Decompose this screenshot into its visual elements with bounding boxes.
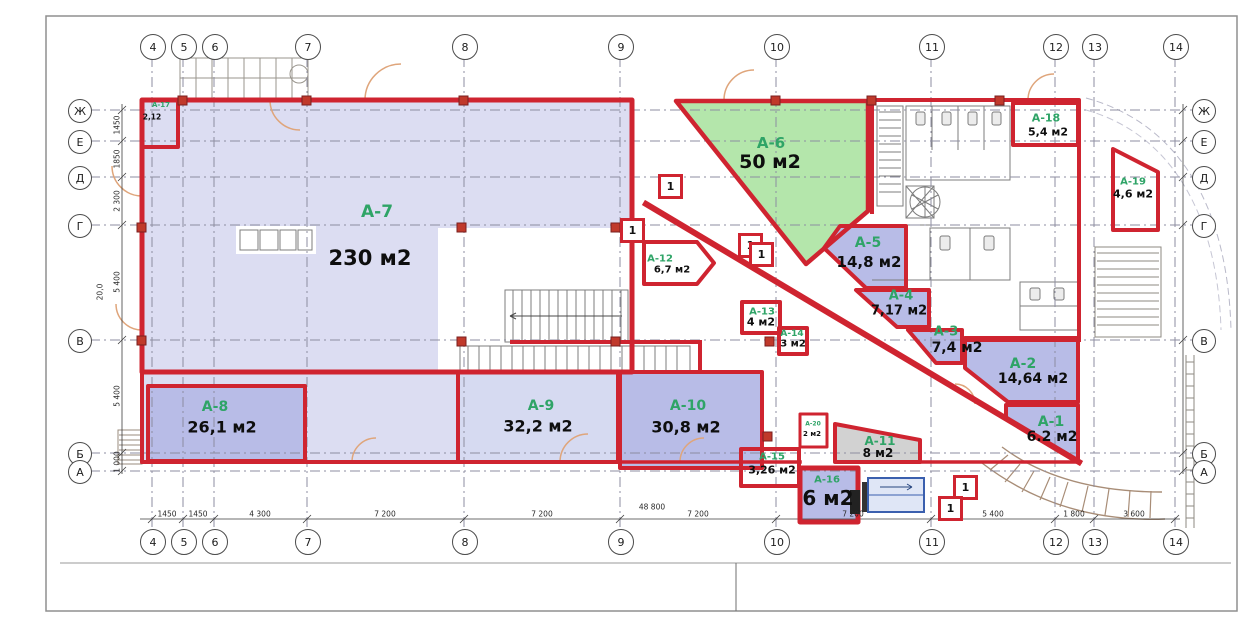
dim-bottom-0: 1450	[157, 510, 176, 519]
dim-left-2: 2 300	[113, 190, 122, 211]
room-code-a4: A-4	[889, 289, 914, 304]
dim-left-0: 1450	[113, 115, 122, 134]
axis-bottom-10: 10	[764, 529, 790, 555]
dim-bottom-7: 5 400	[982, 510, 1003, 519]
room-area-a18: 5,4 м2	[1028, 126, 1068, 139]
axis-top-8: 8	[452, 34, 478, 60]
room-area-a13: 4 м2	[747, 316, 775, 329]
room-area-a1: 6.2 м2	[1027, 429, 1078, 445]
axis-bottom-12: 12	[1043, 529, 1069, 555]
door-marker-1-f: 1	[938, 496, 963, 521]
axis-left-e: Е	[68, 130, 92, 154]
dim-left-3: 5 400	[113, 271, 122, 292]
axis-left-g: Г	[68, 214, 92, 238]
axis-top-10: 10	[764, 34, 790, 60]
axis-bottom-11: 11	[919, 529, 945, 555]
room-code-a17: A-17	[152, 101, 170, 109]
room-code-a9: A-9	[528, 398, 554, 414]
room-code-a10: A-10	[670, 398, 706, 414]
room-area-a12: 6,7 м2	[654, 265, 690, 276]
axis-bottom-4: 4	[140, 529, 166, 555]
axis-bottom-9: 9	[608, 529, 634, 555]
room-code-a8: A-8	[202, 399, 228, 415]
dim-bottom-1: 1450	[188, 510, 207, 519]
room-area-a16: 6 м2	[802, 486, 853, 510]
room-code-a1: A-1	[1038, 414, 1064, 430]
axis-right-zh: Ж	[1192, 99, 1216, 123]
door-marker-1-a: 1	[658, 174, 683, 199]
axis-top-11: 11	[919, 34, 945, 60]
dim-left-5: 1 000	[113, 451, 122, 472]
room-area-a19: 4,6 м2	[1113, 188, 1153, 201]
axis-bottom-13: 13	[1082, 529, 1108, 555]
axis-top-14: 14	[1163, 34, 1189, 60]
room-area-a15: 3,26 м2	[748, 464, 796, 477]
axis-top-6: 6	[202, 34, 228, 60]
dim-bottom-8: 1 800	[1063, 510, 1084, 519]
axis-bottom-6: 6	[202, 529, 228, 555]
room-area-a6: 50 м2	[739, 151, 801, 173]
axis-right-g: Г	[1192, 214, 1216, 238]
axis-left-d: Д	[68, 166, 92, 190]
room-area-a20: 2 м2	[803, 430, 821, 438]
axis-top-5: 5	[171, 34, 197, 60]
dim-left-total: 20,0	[96, 284, 105, 301]
room-area-a17: 2,12	[143, 113, 162, 122]
room-area-a4: 7,17 м2	[871, 304, 927, 319]
room-area-a2: 14,64 м2	[998, 371, 1068, 387]
room-code-a7: A-7	[361, 202, 393, 222]
axis-left-v: В	[68, 329, 92, 353]
room-code-a16: A-16	[814, 475, 840, 486]
room-code-a15: A-15	[759, 452, 785, 463]
axis-right-d: Д	[1192, 166, 1216, 190]
axis-left-zh: Ж	[68, 99, 92, 123]
room-area-a10: 30,8 м2	[651, 418, 720, 437]
room-area-a5: 14,8 м2	[837, 253, 902, 271]
pergola-structure	[180, 58, 308, 98]
axis-top-13: 13	[1082, 34, 1108, 60]
room-area-a11: 8 м2	[863, 446, 894, 460]
dim-left-1: 1850	[113, 149, 122, 168]
room-area-a8: 26,1 м2	[187, 418, 256, 437]
room-code-a20: A-20	[805, 421, 820, 428]
door-marker-1-b: 1	[620, 218, 645, 243]
axis-right-e: Е	[1192, 130, 1216, 154]
axis-bottom-5: 5	[171, 529, 197, 555]
dim-bottom-4: 7 200	[531, 510, 552, 519]
room-area-a3: 7,4 м2	[932, 340, 983, 356]
dim-bottom-9: 3 600	[1123, 510, 1144, 519]
room-area-a14: 3 м2	[780, 339, 806, 350]
axis-top-4: 4	[140, 34, 166, 60]
axis-top-9: 9	[608, 34, 634, 60]
axis-top-7: 7	[295, 34, 321, 60]
room-code-a19: A-19	[1120, 177, 1146, 188]
room-fills	[142, 100, 1078, 522]
room-area-a9: 32,2 м2	[503, 417, 572, 436]
room-code-a5: A-5	[855, 235, 881, 251]
room-code-a14: A-14	[780, 329, 803, 339]
dim-bottom-6: 7 200	[842, 510, 863, 519]
dim-bottom-2: 4 300	[249, 510, 270, 519]
axis-bottom-14: 14	[1163, 529, 1189, 555]
floor-plan-canvas: 4 5 6 7 8 9 10 11 12 13 14 4 5 6 7 8 9 1…	[0, 0, 1245, 629]
room-code-a2: A-2	[1010, 356, 1036, 372]
axis-top-12: 12	[1043, 34, 1069, 60]
dim-bottom-3: 7 200	[374, 510, 395, 519]
room-area-a7: 230 м2	[329, 246, 412, 270]
axis-left-a: А	[68, 460, 92, 484]
dim-bottom-total: 48 800	[639, 503, 665, 512]
axis-bottom-7: 7	[295, 529, 321, 555]
room-code-a18: A-18	[1032, 112, 1060, 125]
dim-bottom-5: 7 200	[687, 510, 708, 519]
room-code-a12: A-12	[647, 254, 673, 265]
dim-left-4: 5 400	[113, 385, 122, 406]
axis-right-v: В	[1192, 329, 1216, 353]
room-code-a3: A-3	[934, 325, 959, 340]
axis-bottom-8: 8	[452, 529, 478, 555]
room-code-a6: A-6	[757, 134, 785, 152]
door-marker-1-d: 1	[749, 242, 774, 267]
axis-right-a: А	[1192, 460, 1216, 484]
